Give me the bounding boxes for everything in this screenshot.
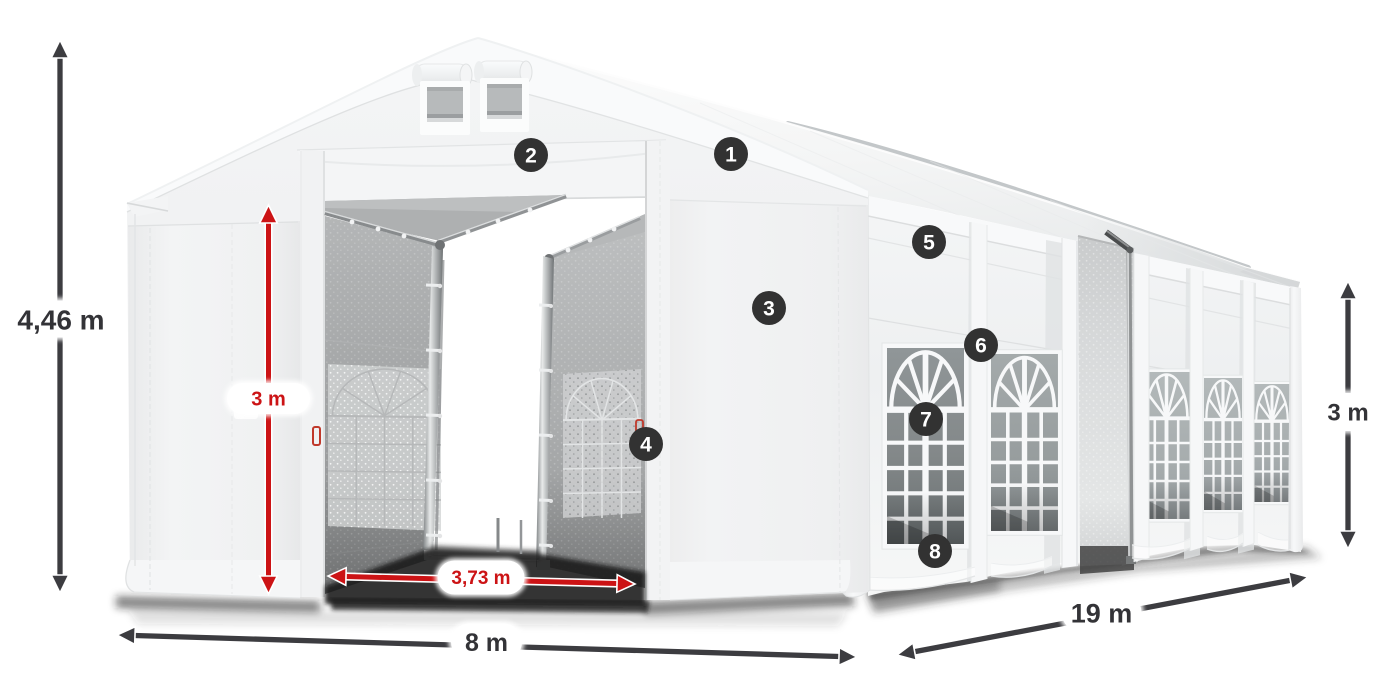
- svg-text:3: 3: [763, 298, 775, 321]
- svg-text:3,73 m: 3,73 m: [451, 568, 510, 589]
- svg-text:7: 7: [920, 409, 932, 432]
- svg-text:8: 8: [929, 541, 941, 564]
- svg-text:19 m: 19 m: [1071, 599, 1133, 629]
- svg-text:4,46 m: 4,46 m: [17, 305, 104, 336]
- svg-text:2: 2: [525, 145, 537, 168]
- svg-text:4: 4: [640, 434, 652, 457]
- svg-text:1: 1: [725, 144, 737, 167]
- svg-text:3 m: 3 m: [1327, 400, 1368, 427]
- svg-text:8 m: 8 m: [465, 629, 508, 657]
- svg-text:5: 5: [923, 232, 935, 255]
- svg-text:3 m: 3 m: [251, 389, 285, 411]
- svg-text:6: 6: [975, 335, 987, 358]
